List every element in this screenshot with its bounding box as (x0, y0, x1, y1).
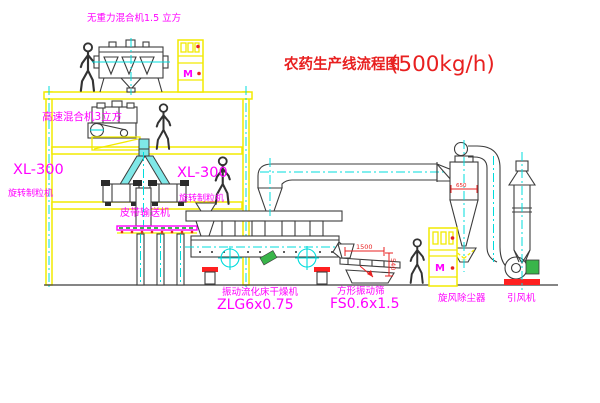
label-screen-model: FS0.6x1.5 (330, 296, 400, 312)
indicator-dot (451, 236, 455, 240)
indicator-dot (197, 72, 201, 76)
dimension-screen-height: 540 (389, 258, 397, 270)
diagram-title: 农药生产线流程图 (283, 55, 400, 73)
label-granulator-left-name: 旋转制粒机 (8, 187, 53, 199)
label-granulator-right-model: XL-300 (177, 165, 228, 181)
process-flow-diagram: M (0, 0, 600, 403)
high-speed-mixer (88, 101, 149, 150)
cabinet-a-marking: M (183, 69, 193, 80)
control-cabinet-b: M (429, 228, 457, 286)
floor-slab-top (44, 92, 252, 99)
label-belt-conveyor: 皮带输送机 (120, 206, 170, 219)
person-figure (81, 43, 95, 91)
dimension-screen-length: 1500 (356, 243, 373, 251)
label-fan: 引风机 (507, 292, 536, 304)
label-granulator-left-model: XL-300 (13, 162, 64, 178)
exhaust-duct (258, 158, 452, 216)
cabinet-b-marking: M (435, 263, 445, 274)
fan-motor (526, 260, 539, 274)
label-granulator-right-name: 旋转制粒机 (179, 192, 224, 204)
control-cabinet-a: M (178, 40, 203, 92)
label-high-speed-mixer: 高速混合机3立方 (42, 110, 122, 123)
label-cyclone: 旋风除尘器 (438, 292, 486, 304)
person-figure (157, 104, 170, 149)
belt-conveyor (117, 226, 197, 285)
label-zero-gravity-mixer: 无重力混合机1.5 立方 (87, 12, 181, 24)
support-mount (202, 267, 218, 272)
indicator-dot (196, 45, 200, 49)
indicator-dot (451, 266, 455, 270)
diagram-title-capacity: (500kg/h) (390, 52, 495, 77)
support-mount (314, 267, 330, 272)
zero-gravity-mixer (92, 38, 170, 95)
dimension-cyclone: 650 (456, 183, 467, 189)
diagram-canvas: M (0, 0, 600, 403)
person-figure (411, 239, 424, 283)
label-dryer-model: ZLG6x0.75 (217, 297, 294, 313)
